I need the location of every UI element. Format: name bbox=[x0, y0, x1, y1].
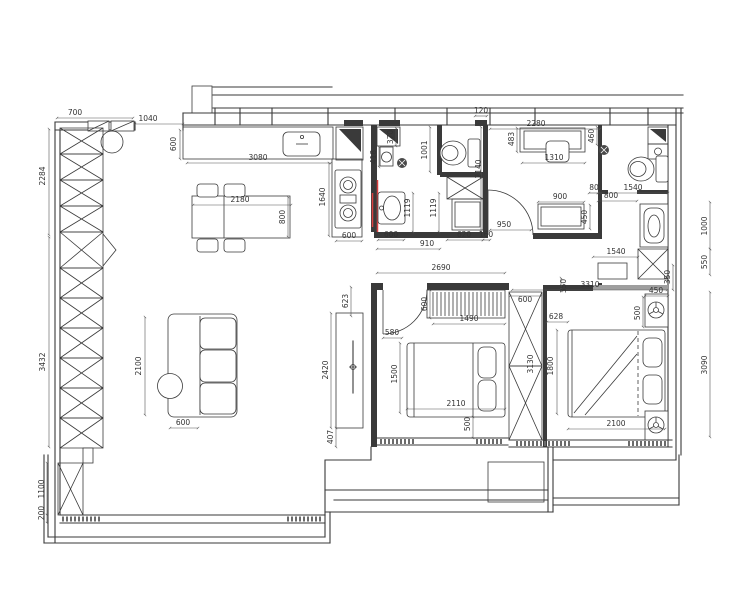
dimension-label: 1119 bbox=[429, 198, 438, 217]
pillow bbox=[643, 338, 662, 367]
dimension-label: 2690 bbox=[431, 263, 450, 272]
dimension-label: 3130 bbox=[526, 354, 535, 373]
dimension-label: 3310 bbox=[580, 280, 599, 289]
floor-plan-page: 7001040600308021808002284343211002001640… bbox=[0, 0, 740, 600]
dimension-label: 450 bbox=[580, 210, 589, 225]
dimension-label: 460 bbox=[587, 129, 596, 144]
dimension-lines bbox=[47, 116, 710, 523]
dimension-label: 2110 bbox=[446, 399, 465, 408]
dimension-label: 1640 bbox=[318, 187, 327, 206]
dimension-label: 1000 bbox=[700, 216, 709, 235]
floor-drain-icon bbox=[599, 145, 609, 155]
dimension-label: 407 bbox=[326, 430, 335, 445]
sofa-cushion bbox=[200, 350, 236, 382]
dimension-label: 1119 bbox=[403, 198, 412, 217]
dimension-label: 600 bbox=[420, 297, 429, 312]
bench-cabinet bbox=[538, 204, 584, 229]
open-cabinet bbox=[452, 199, 483, 230]
bathroom2 bbox=[598, 127, 668, 279]
dimension-label: 1800 bbox=[546, 356, 555, 375]
dimension-label: 628 bbox=[549, 312, 564, 321]
wash-basin-icon bbox=[378, 192, 405, 224]
dimension-label: 483 bbox=[507, 132, 516, 147]
dimension-label: 500 bbox=[463, 417, 472, 432]
pillow bbox=[478, 380, 496, 411]
dimension-label: 1310 bbox=[544, 153, 563, 162]
window-mullions bbox=[215, 108, 648, 125]
pillow bbox=[478, 347, 496, 378]
dimension-label: 370 bbox=[386, 130, 395, 145]
dimension-label: 580 bbox=[385, 328, 400, 337]
wall-fill bbox=[344, 120, 363, 126]
floor-plan-canvas: 7001040600308021808002284343211002001640… bbox=[0, 0, 740, 600]
dimension-label: 80 bbox=[589, 183, 599, 192]
sofa-cushion bbox=[200, 383, 236, 414]
dimension-label: 600 bbox=[518, 295, 533, 304]
dimension-label: 1540 bbox=[623, 183, 642, 192]
shoe-cabinet bbox=[88, 121, 134, 131]
dimension-label: 450 bbox=[649, 286, 664, 295]
dimension-label: 200 bbox=[37, 506, 46, 521]
dimension-label: 600 bbox=[342, 231, 357, 240]
nightstand-bottom bbox=[645, 411, 668, 440]
corner-cabinet-icon bbox=[336, 127, 363, 160]
wall-fill bbox=[379, 120, 400, 126]
dimension-label: 1040 bbox=[138, 114, 157, 123]
gas-stove-icon bbox=[335, 170, 361, 228]
dimension-label: 910 bbox=[420, 239, 435, 248]
dimension-label: 2420 bbox=[321, 360, 330, 379]
dimension-label: 418 bbox=[369, 150, 378, 165]
cabinet-with-door-swing bbox=[60, 232, 116, 268]
facade-pier bbox=[192, 86, 212, 113]
tv-cabinet bbox=[336, 313, 363, 428]
dimension-label: 900 bbox=[553, 192, 568, 201]
dimension-label: 500 bbox=[633, 306, 642, 321]
dimension-label: 600 bbox=[384, 230, 399, 239]
basin-cabinet bbox=[640, 204, 668, 247]
dimension-label: 700 bbox=[68, 108, 83, 117]
water-heater-icon bbox=[380, 147, 393, 166]
low-cabinet bbox=[58, 463, 83, 515]
floor-drain-icon bbox=[397, 158, 407, 168]
dimension-label: 120 bbox=[474, 106, 489, 115]
dimension-label: 620 bbox=[457, 230, 472, 239]
pillow bbox=[643, 375, 662, 404]
living-room bbox=[158, 313, 364, 428]
dimension-label: 1490 bbox=[459, 314, 478, 323]
toilet-icon bbox=[628, 156, 668, 182]
balconies bbox=[44, 447, 679, 543]
side-table bbox=[158, 374, 183, 399]
kitchen-sink-icon bbox=[283, 132, 320, 156]
dimension-label: 3090 bbox=[700, 355, 709, 374]
dimension-label: 2100 bbox=[606, 419, 625, 428]
sofa bbox=[168, 314, 237, 417]
nightstand-top bbox=[645, 294, 668, 327]
dimension-label: 2100 bbox=[134, 356, 143, 375]
dimension-label: 800 bbox=[278, 210, 287, 225]
dimension-label: 950 bbox=[497, 220, 512, 229]
dimension-label: 2284 bbox=[38, 166, 47, 185]
wall-ledge bbox=[83, 448, 93, 463]
dimension-label: 600 bbox=[176, 418, 191, 427]
dimension-label: 600 bbox=[169, 137, 178, 152]
dimension-label: 3432 bbox=[38, 352, 47, 371]
dimension-label: 1540 bbox=[606, 247, 625, 256]
dimension-label: 2140 bbox=[474, 159, 483, 178]
dimension-label: 350 bbox=[559, 279, 568, 294]
dimension-label: 1100 bbox=[37, 479, 46, 498]
dimension-label: 623 bbox=[341, 294, 350, 309]
entry-area bbox=[88, 121, 134, 153]
balcony-slab bbox=[488, 462, 544, 502]
dimension-label: 2180 bbox=[230, 195, 249, 204]
corner-sink-icon bbox=[648, 127, 668, 144]
dimension-label: 3080 bbox=[248, 153, 267, 162]
bed-double bbox=[568, 330, 665, 417]
dimension-label: 550 bbox=[700, 255, 709, 270]
study-room bbox=[520, 128, 585, 229]
left-wardrobe-column bbox=[58, 128, 116, 515]
wc-room bbox=[440, 139, 483, 230]
storage-cabinet-x bbox=[447, 177, 483, 199]
dimension-label: 800 bbox=[604, 191, 619, 200]
dimension-label: 1500 bbox=[390, 364, 399, 383]
dimension-label: 160 bbox=[479, 230, 494, 239]
entry-round-stool bbox=[101, 131, 123, 153]
dimension-label: 2280 bbox=[526, 119, 545, 128]
hanging-clothes-stripes bbox=[433, 292, 501, 316]
dimension-label: 1001 bbox=[420, 140, 429, 159]
stool bbox=[598, 263, 627, 279]
dimension-label: 350 bbox=[663, 270, 672, 285]
tv-unit bbox=[336, 313, 363, 428]
sofa-cushion bbox=[200, 318, 236, 349]
